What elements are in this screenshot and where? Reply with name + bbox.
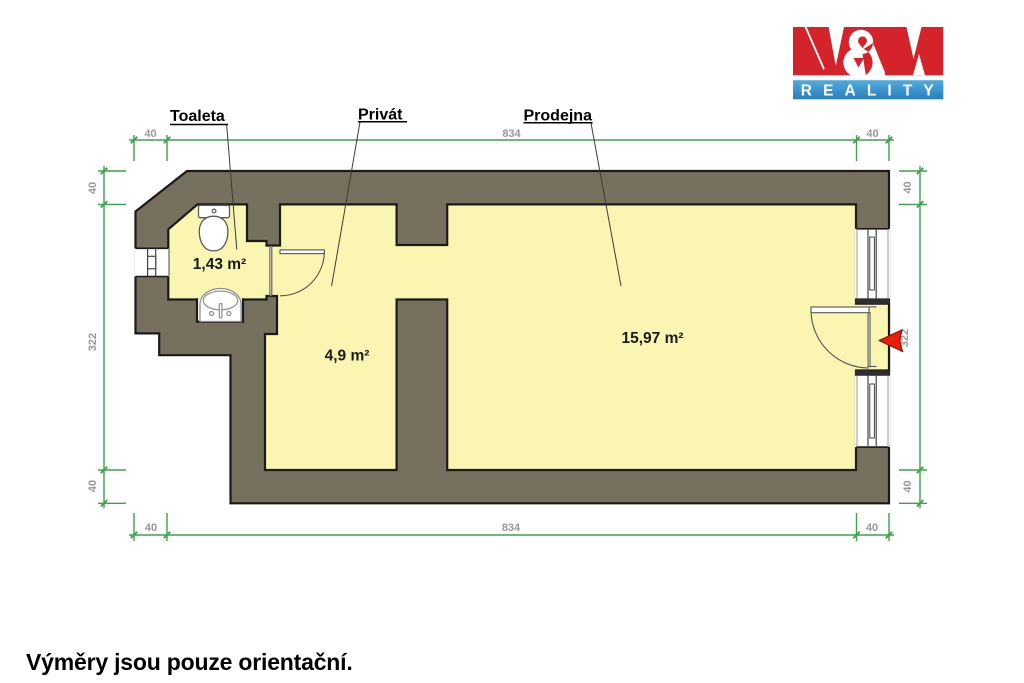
svg-text:40: 40	[902, 480, 914, 492]
svg-text:Prodejna: Prodejna	[524, 108, 593, 125]
svg-text:REALITY: REALITY	[801, 82, 945, 99]
svg-text:40: 40	[902, 181, 914, 193]
svg-text:Privát: Privát	[358, 107, 403, 124]
svg-text:40: 40	[866, 522, 878, 534]
svg-text:322: 322	[87, 333, 99, 351]
svg-text:40: 40	[866, 128, 878, 140]
svg-text:4,9 m²: 4,9 m²	[325, 348, 370, 365]
svg-text:40: 40	[87, 182, 99, 194]
svg-text:834: 834	[502, 522, 521, 534]
svg-text:40: 40	[144, 128, 156, 140]
svg-text:40: 40	[145, 522, 157, 534]
svg-text:Toaleta: Toaleta	[170, 108, 225, 125]
svg-text:15,97 m²: 15,97 m²	[621, 330, 683, 347]
svg-text:Výměry jsou pouze orientační.: Výměry jsou pouze orientační.	[26, 649, 353, 675]
svg-text:1,43 m²: 1,43 m²	[193, 256, 246, 273]
svg-text:834: 834	[502, 128, 521, 140]
svg-text:40: 40	[87, 480, 99, 492]
